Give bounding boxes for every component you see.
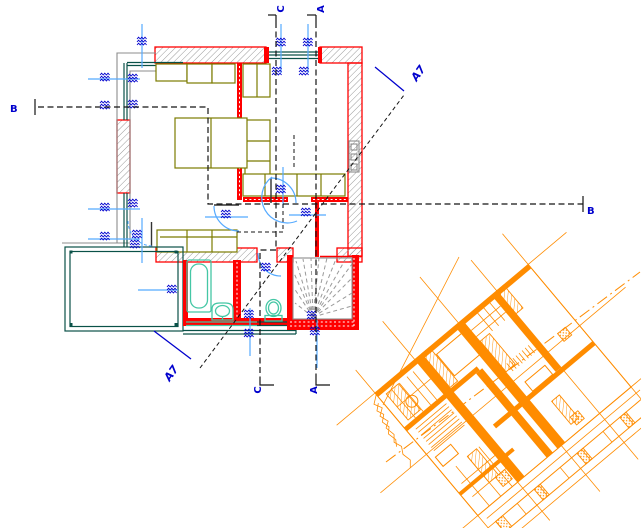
main-floor-plan[interactable] xyxy=(62,24,362,368)
label-c-top: C xyxy=(276,5,287,12)
label-c-bottom: C xyxy=(253,386,264,393)
table xyxy=(175,118,247,168)
stair-treads xyxy=(294,258,352,317)
wardrobe xyxy=(245,120,270,182)
toilet xyxy=(265,300,282,322)
label-a7-top: A7 xyxy=(408,63,429,85)
light-walls xyxy=(62,53,156,243)
section-line-b[interactable]: B B xyxy=(10,99,595,217)
bathroom-walls xyxy=(183,260,296,334)
sink xyxy=(212,303,233,320)
site-plan-body xyxy=(290,180,641,528)
sofa xyxy=(157,230,237,252)
label-a7-bottom: A7 xyxy=(161,363,182,385)
detail-line-a7[interactable]: A7 A7 xyxy=(154,63,429,385)
label-a-top: A xyxy=(316,5,327,13)
bathtub xyxy=(187,260,211,312)
staircase xyxy=(287,255,359,330)
site-plan-rotated[interactable] xyxy=(290,180,641,528)
drawing-svg: B B C C A A A7 A7 xyxy=(0,0,641,528)
door-living-hall xyxy=(214,205,239,231)
label-a-bottom: A xyxy=(309,386,320,394)
label-b-right: B xyxy=(587,206,595,217)
label-b-left: B xyxy=(10,104,18,115)
cad-drawing-canvas[interactable]: B B C C A A A7 A7 xyxy=(0,0,641,528)
kitchen-counter xyxy=(156,64,235,83)
closet xyxy=(243,64,270,97)
